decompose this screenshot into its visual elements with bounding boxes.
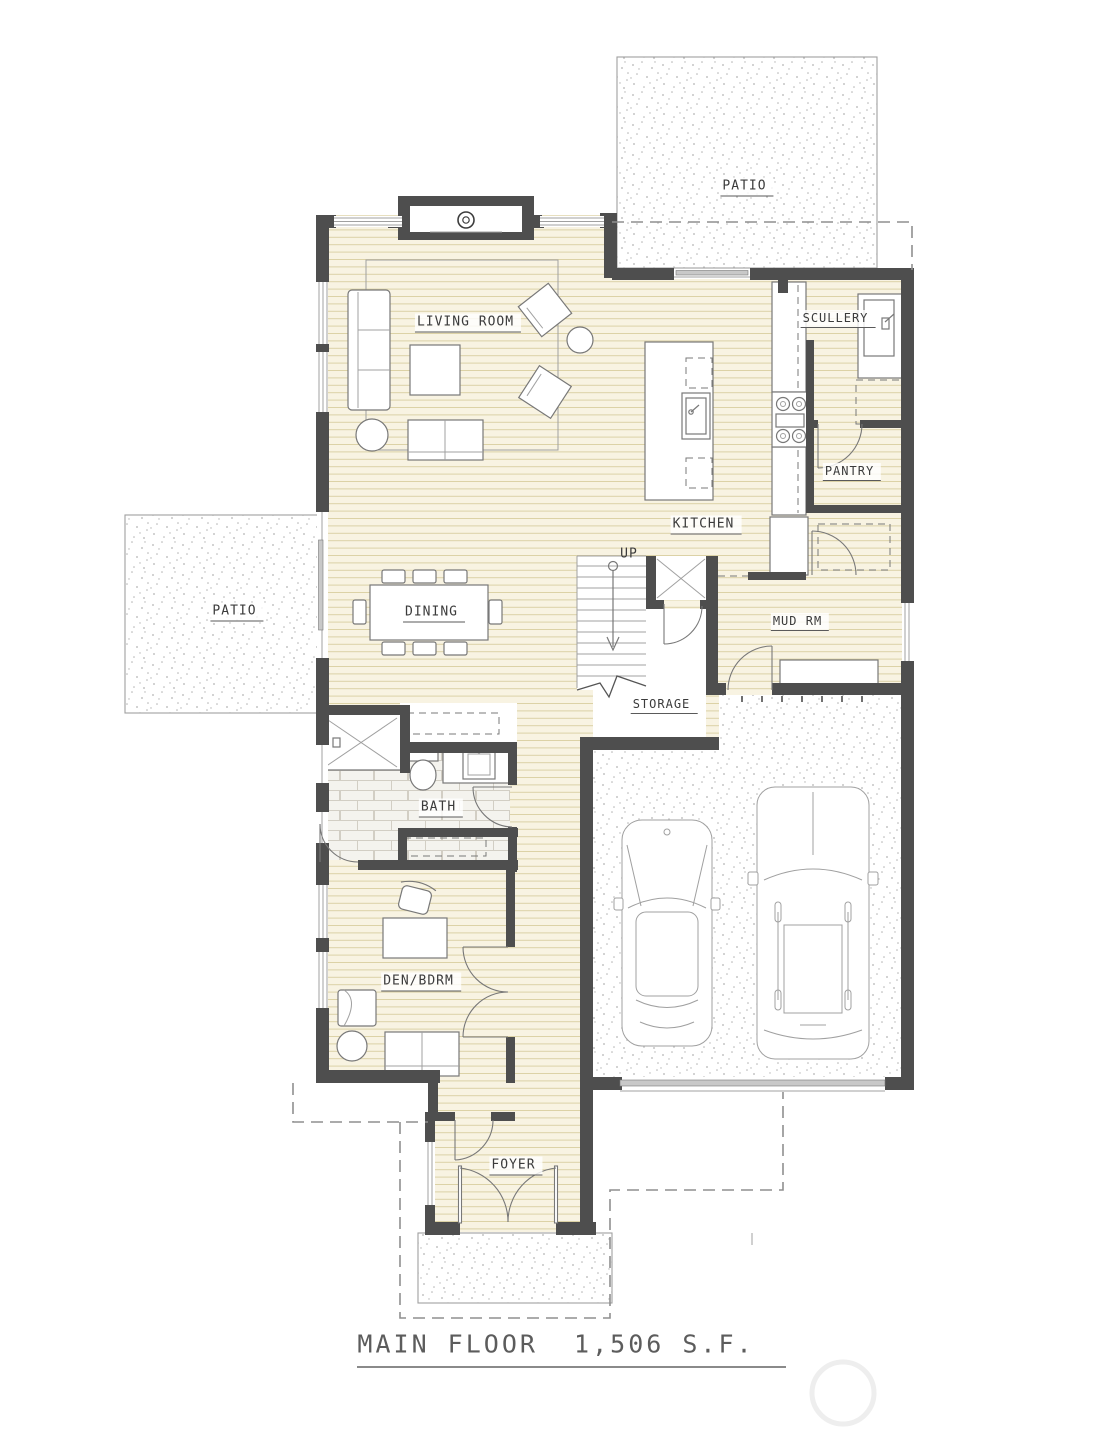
desk bbox=[383, 918, 447, 958]
side-table-round bbox=[356, 419, 388, 451]
entry-stoop bbox=[418, 1233, 612, 1303]
car-sedan bbox=[614, 820, 720, 1046]
left-wall-windows bbox=[317, 282, 328, 1008]
mud-bench bbox=[780, 660, 878, 684]
foyer-window bbox=[426, 1142, 435, 1205]
room-label-kitchen: KITCHEN bbox=[671, 518, 742, 531]
kitchen-island bbox=[645, 342, 713, 500]
window-top-right bbox=[540, 216, 604, 227]
den-round-table bbox=[337, 1031, 367, 1061]
mud-room-window bbox=[902, 603, 913, 661]
storage-floor bbox=[593, 609, 706, 737]
stairs-up-label: UP bbox=[620, 548, 638, 561]
room-label-dining: DINING bbox=[403, 606, 465, 619]
watermark-circle bbox=[812, 1362, 874, 1424]
room-label-patio-left: PATIO bbox=[210, 605, 263, 618]
chair-side-table bbox=[567, 327, 593, 353]
floor-plan-sheet: PATIO LIVING ROOM SCULLERY PANTRY KITCHE… bbox=[0, 0, 1112, 1439]
room-label-scullery: SCULLERY bbox=[801, 312, 876, 324]
plan-title: MAIN FLOOR 1,506 S.F. bbox=[357, 1330, 754, 1359]
patio-upper-surface bbox=[617, 57, 877, 268]
toilet bbox=[408, 748, 438, 790]
range-stove bbox=[772, 392, 809, 447]
loveseat bbox=[385, 1032, 459, 1076]
room-label-patio-upper: PATIO bbox=[720, 180, 773, 193]
car-suv bbox=[748, 787, 878, 1059]
room-label-foyer: FOYER bbox=[489, 1159, 542, 1172]
room-label-mud-room: MUD RM bbox=[771, 615, 829, 627]
room-label-bath: BATH bbox=[419, 801, 463, 814]
room-label-pantry: PANTRY bbox=[823, 465, 881, 477]
garage-door bbox=[620, 1080, 885, 1245]
refrigerator bbox=[770, 517, 808, 575]
room-label-storage: STORAGE bbox=[631, 698, 698, 710]
sofa bbox=[348, 290, 390, 410]
kitchen-slider-door bbox=[674, 269, 750, 279]
floor-plan-drawing bbox=[0, 0, 1112, 1439]
den-armchair bbox=[338, 990, 376, 1026]
ottoman-bench bbox=[408, 420, 483, 460]
room-label-living-room: LIVING ROOM bbox=[415, 316, 521, 329]
coffee-table bbox=[410, 345, 460, 395]
window-top-left bbox=[334, 216, 402, 227]
dining-patio-slider bbox=[317, 512, 328, 658]
room-label-den-bedroom: DEN/BDRM bbox=[381, 975, 461, 988]
